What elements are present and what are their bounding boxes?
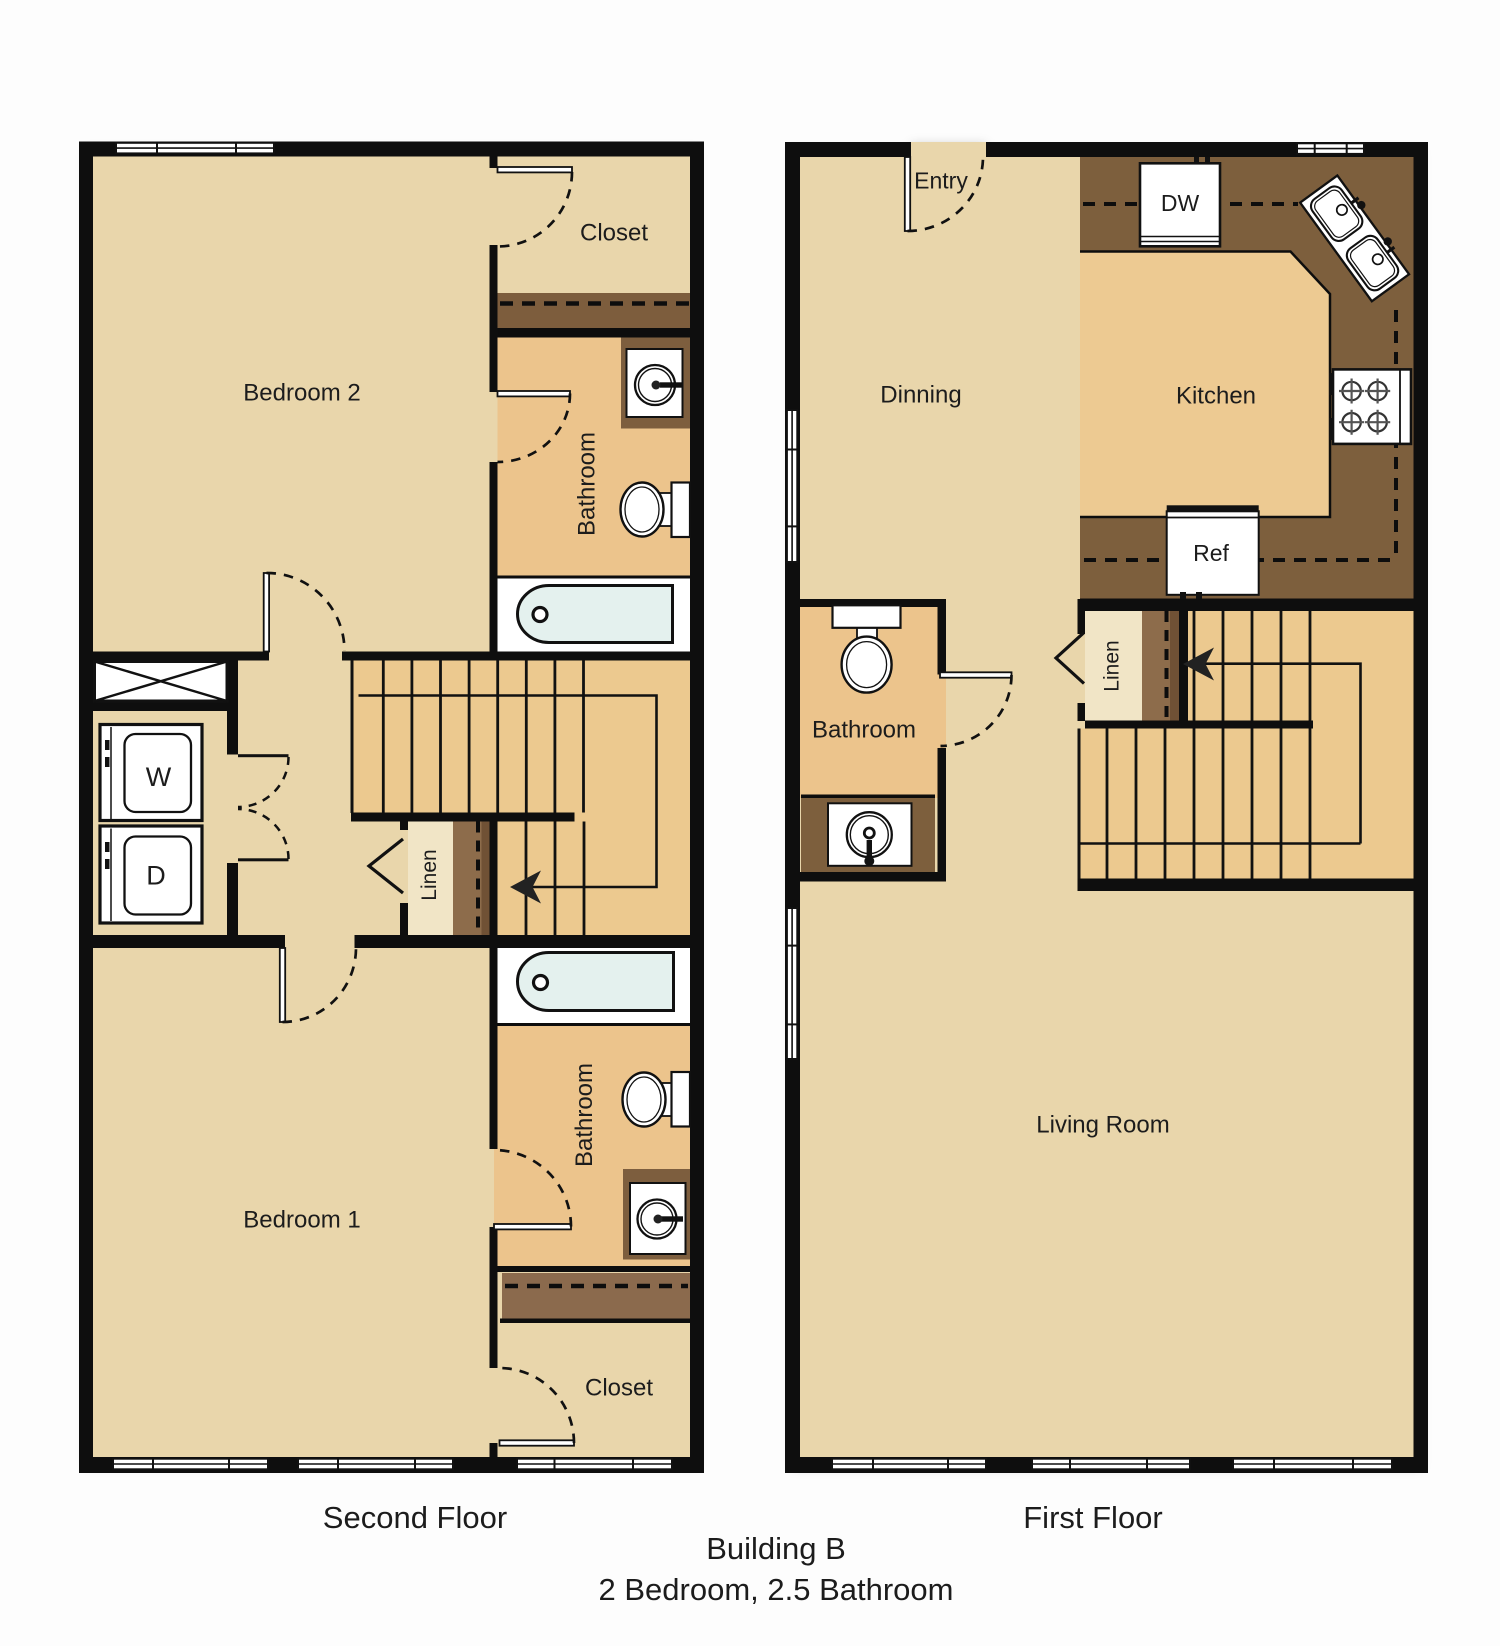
svg-text:Kitchen: Kitchen [1176, 383, 1256, 410]
svg-text:Dinning: Dinning [880, 382, 961, 409]
svg-text:Linen: Linen [1101, 640, 1124, 691]
svg-text:Bathroom: Bathroom [571, 1063, 598, 1167]
svg-text:Closet: Closet [580, 220, 648, 247]
svg-text:First Floor: First Floor [1023, 1500, 1163, 1535]
svg-text:Second Floor: Second Floor [323, 1500, 507, 1535]
svg-text:Bedroom 2: Bedroom 2 [243, 380, 360, 407]
svg-text:Bedroom 1: Bedroom 1 [243, 1207, 360, 1234]
svg-text:Bathroom: Bathroom [574, 432, 601, 536]
svg-text:Entry: Entry [914, 168, 968, 194]
svg-text:DW: DW [1161, 190, 1200, 216]
svg-text:2 Bedroom, 2.5 Bathroom: 2 Bedroom, 2.5 Bathroom [599, 1572, 954, 1607]
svg-text:Linen: Linen [418, 849, 441, 900]
svg-text:Ref: Ref [1193, 540, 1229, 566]
svg-text:Bathroom: Bathroom [812, 717, 916, 744]
svg-text:Living Room: Living Room [1036, 1112, 1169, 1139]
svg-text:D: D [146, 861, 166, 891]
svg-text:W: W [146, 762, 172, 792]
svg-text:Closet: Closet [585, 1375, 653, 1402]
svg-text:Building B: Building B [706, 1531, 846, 1566]
